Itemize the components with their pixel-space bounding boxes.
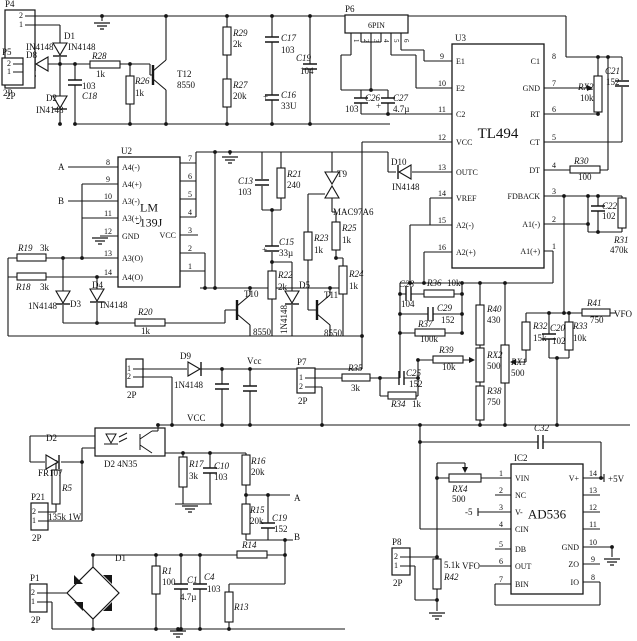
label-C10: C10 (214, 461, 230, 471)
potentiometer-body (594, 76, 602, 112)
junction-dot (334, 256, 338, 260)
label-1k: 1k (135, 88, 145, 98)
label-100: 100 (578, 172, 592, 182)
junction-dot (460, 312, 464, 316)
pin-num: 4 (382, 39, 390, 43)
pin-num: 15 (438, 216, 446, 225)
junction-dot (435, 555, 439, 559)
junction-dot (270, 208, 274, 212)
pin-num: 7 (499, 575, 503, 584)
pin-num: 2 (32, 507, 36, 516)
pin-label: DT (529, 166, 540, 175)
bridge-diode-icon (74, 602, 83, 611)
pin-num: 2 (299, 382, 303, 391)
pin-num: 13 (438, 163, 446, 172)
label-R33: R33 (572, 321, 588, 331)
label-750: 750 (487, 397, 501, 407)
label-103: 103 (214, 472, 228, 482)
label-470k: 470k (610, 245, 629, 255)
pin-label: A3(O) (122, 254, 143, 263)
bridge-rectifier-icon (67, 567, 119, 619)
pin-label: CT (530, 138, 540, 147)
label-102: 102 (552, 336, 566, 346)
label-T10: T10 (244, 289, 259, 299)
pin-num: 10 (438, 79, 446, 88)
label-R39: R39 (438, 345, 454, 355)
junction-dot (596, 194, 600, 198)
junction-dot (198, 627, 202, 631)
junction-dot (283, 553, 287, 557)
label-R42: R42 (443, 572, 459, 582)
junction-dot (586, 222, 590, 226)
junction-dot (398, 312, 402, 316)
ground-icon (94, 23, 110, 29)
pin-label: A4(O) (122, 273, 143, 282)
label-500: 500 (452, 494, 466, 504)
pin-label: VCC (160, 231, 176, 240)
resistor-body (388, 392, 416, 399)
label-3k: 3k (40, 282, 50, 292)
pin-label: A1(-) (522, 220, 540, 229)
junction-dot (164, 14, 168, 18)
junction-dot (270, 260, 274, 264)
junction-dot (503, 281, 507, 285)
potentiometer-body (476, 348, 484, 382)
diode-icon (56, 291, 70, 303)
pin-num: 10 (589, 538, 597, 547)
ground-icon (92, 238, 108, 244)
label-D4: D4 (92, 280, 103, 290)
label-C19: C19 (296, 53, 312, 63)
label-10k: 10k (447, 278, 461, 288)
label-R30: R30 (573, 156, 589, 166)
pin-label: ZO (568, 560, 579, 569)
label-1N4148: 1N4148 (28, 301, 57, 311)
label-VFO: VFO (614, 309, 633, 319)
capacitor-plates (538, 435, 543, 449)
pin-num: 11 (438, 105, 446, 114)
junction-dot (369, 88, 373, 92)
diode-icon (36, 57, 48, 71)
label-R34: R34 (390, 399, 406, 409)
label-8550: 8550 (177, 80, 196, 90)
label-430: 430 (487, 315, 501, 325)
pin-num: 2 (188, 244, 192, 253)
pin-num: 2 (499, 486, 503, 495)
junction-dot (270, 14, 274, 18)
junction-dot (61, 256, 65, 260)
label-1k: 1k (349, 281, 359, 291)
pin-num: 1 (299, 373, 303, 382)
connector-sub: 2P (31, 615, 41, 625)
pin-num: 3 (499, 503, 503, 512)
label-D1: D1 (64, 31, 75, 41)
transistor-legs (237, 295, 250, 325)
connector-ref-P1: P1 (30, 573, 40, 583)
label-20k: 20k (233, 91, 247, 101)
label-1k: 1k (412, 399, 422, 409)
label-R19: R19 (17, 243, 33, 253)
junction-dot (176, 627, 180, 631)
junction-dot (248, 423, 252, 427)
ground-icon (604, 559, 620, 565)
connector-sub: 2P (298, 396, 308, 406)
pin-label: BIN (515, 580, 529, 589)
junction-dot (308, 122, 312, 126)
resistor-body (277, 168, 285, 198)
resistor-body (268, 271, 276, 299)
label-15k: 15k (533, 333, 547, 343)
label-Vcc: Vcc (247, 356, 262, 366)
label-R36: R36 (426, 278, 442, 288)
junction-dot (225, 122, 229, 126)
label-R22: R22 (277, 270, 293, 280)
pin-label: VREF (456, 194, 477, 203)
label-R37: R37 (417, 319, 433, 329)
label-RX1: RX1 (510, 357, 527, 367)
label-D2: D2 (46, 93, 57, 103)
label-B: B (58, 196, 64, 206)
pin-num: 12 (104, 227, 112, 236)
ic-ref-U3: U3 (455, 33, 466, 43)
diode-icon (188, 362, 200, 376)
junction-dot (220, 423, 224, 427)
junction-dot (80, 460, 84, 464)
label-R17: R17 (188, 459, 204, 469)
label-D8: D8 (26, 50, 37, 60)
junction-dot (91, 553, 95, 557)
pin-num: 5 (188, 190, 192, 199)
pin-num: 7 (188, 154, 192, 163)
junction-dot (360, 334, 364, 338)
junction-dot (555, 423, 559, 427)
label-750: 750 (590, 315, 604, 325)
resistor-body (618, 198, 626, 228)
junction-dot (562, 311, 566, 315)
junction-dot (586, 194, 590, 198)
label-+: + (376, 101, 381, 111)
junction-dot (95, 321, 99, 325)
label-103: 103 (238, 187, 252, 197)
resistor-body (522, 322, 530, 350)
label--5: -5 (465, 507, 473, 517)
label-33U: 33U (281, 101, 297, 111)
resistor-body (179, 457, 187, 487)
label-R18: R18 (15, 282, 31, 292)
junction-dot (398, 331, 402, 335)
resistor-body (476, 305, 484, 345)
junction-dot (213, 150, 217, 154)
potentiometer-body (449, 474, 481, 482)
junction-dot (244, 493, 248, 497)
connector-sub: 6PIN (368, 21, 385, 30)
triac-icon (325, 186, 339, 198)
pin-num: 8 (106, 158, 110, 167)
resistor-body (17, 273, 46, 280)
pin-num: 14 (589, 469, 597, 478)
label-R21: R21 (286, 169, 302, 179)
label-R15: R15 (249, 505, 265, 515)
resistor-body (424, 290, 454, 297)
junction-dot (58, 62, 62, 66)
label-1N4148: 1N4148 (279, 305, 289, 334)
ground-icon (222, 157, 238, 163)
label-R24: R24 (348, 269, 364, 279)
wiper-arrow-icon (469, 357, 475, 363)
junction-dot (320, 423, 324, 427)
label-C32: C32 (534, 423, 550, 433)
resistor-body (225, 592, 233, 622)
label-500: 500 (511, 368, 525, 378)
label-VFO: VFO (462, 561, 481, 571)
label-C13: C13 (238, 176, 254, 186)
label-R38: R38 (486, 386, 502, 396)
label-1k: 1k (342, 235, 352, 245)
capacitor-plates (174, 584, 188, 589)
pin-label: C1 (531, 57, 540, 66)
pin-label: RT (530, 110, 540, 119)
junction-dot (418, 423, 422, 427)
junction-dot (596, 55, 600, 59)
pin-num: 2 (362, 39, 370, 43)
label-1k: 1k (314, 245, 324, 255)
label-T12: T12 (177, 69, 192, 79)
pin-num: 10 (104, 192, 112, 201)
junction-dot (398, 292, 402, 296)
pin-num: 7 (552, 79, 556, 88)
pin-num: 4 (552, 161, 556, 170)
label-R26: R26 (134, 76, 150, 86)
label-R31: R31 (613, 235, 629, 245)
label-+: + (263, 92, 268, 102)
junction-dot (596, 112, 600, 116)
ground-icon (170, 631, 186, 637)
junction-dot (220, 367, 224, 371)
label-100: 100 (162, 577, 176, 587)
resistor-body (304, 232, 312, 260)
junction-dot (95, 275, 99, 279)
resistor-body (476, 386, 484, 420)
pin-num: 3 (552, 187, 556, 196)
label-A: A (58, 162, 65, 172)
label-R20: R20 (137, 307, 153, 317)
label-T11: T11 (324, 290, 338, 300)
pin-num: 1 (499, 469, 503, 478)
schematic-canvas: U2LM-139J8A4(-)9A4(+)10A3(-)11A3(+)12GND… (0, 0, 637, 641)
junction-dot (181, 451, 185, 455)
pin-num: 14 (438, 189, 446, 198)
pin-label: V- (515, 508, 523, 517)
label-3k: 3k (189, 471, 199, 481)
label-500: 500 (487, 361, 501, 371)
label-1k: 1k (96, 69, 106, 79)
label-FR107: FR107 (38, 468, 63, 478)
ic-name-U3: TL494 (478, 126, 519, 142)
junction-dot (562, 194, 566, 198)
label-IN4148: IN4148 (100, 300, 128, 310)
label-20k: 20k (251, 467, 265, 477)
label-R23: R23 (313, 233, 329, 243)
junction-dot (100, 14, 104, 18)
pin-num: 13 (104, 249, 112, 258)
resistor-body (342, 374, 370, 381)
bridge-diode-icon (103, 602, 112, 611)
junction-dot (435, 598, 439, 602)
pin-num: 5 (552, 133, 556, 142)
label-103: 103 (207, 584, 221, 594)
pin-num: 1 (394, 561, 398, 570)
pin-num: 13 (589, 486, 597, 495)
label-C20: C20 (550, 323, 566, 333)
junction-dot (179, 553, 183, 557)
pin-num: 8 (591, 573, 595, 582)
pin-num: 2 (31, 588, 35, 597)
diode-icon (399, 165, 411, 179)
label-152: 152 (441, 315, 455, 325)
junction-dot (422, 281, 426, 285)
junction-dot (460, 281, 464, 285)
junction-dot (308, 14, 312, 18)
label-10k: 10k (442, 362, 456, 372)
junction-dot (128, 62, 132, 66)
ic-name-U2: LM (140, 201, 158, 215)
label-152: 152 (606, 77, 620, 87)
resistor-body (242, 504, 250, 534)
pin-label: C2 (456, 110, 465, 119)
pin-num: 9 (106, 175, 110, 184)
label-R28: R28 (91, 51, 107, 61)
label-103: 103 (82, 81, 96, 91)
label-2k: 2k (233, 39, 243, 49)
junction-dot (154, 553, 158, 557)
label-R27: R27 (232, 80, 248, 90)
schematic-page: TL494 / LM-139J / AD536 power control sc… (0, 0, 637, 641)
pin-num: 1 (7, 67, 11, 76)
label-4.7µ: 4.7µ (180, 592, 196, 602)
junction-dot (164, 122, 168, 126)
pin-num: 9 (591, 555, 595, 564)
transistor-legs (153, 60, 166, 90)
connector-ref-P21: P21 (31, 492, 45, 502)
label-135k 1W: 135k 1W (48, 512, 82, 522)
resistor-body (223, 27, 231, 55)
connector-ref-P7: P7 (297, 357, 307, 367)
label-R32: R32 (532, 321, 548, 331)
resistor-body (339, 266, 347, 294)
pin-label: DB (515, 545, 526, 554)
pin-num: 1 (188, 262, 192, 271)
ic-name-IC2: AD536 (528, 507, 567, 522)
pin-num: 9 (440, 52, 444, 61)
junction-dot (208, 451, 212, 455)
pin-num: 4 (188, 208, 192, 217)
label-MAC97A6: MAC97A6 (333, 207, 374, 217)
label-C16: C16 (281, 90, 297, 100)
label-C27: C27 (393, 93, 409, 103)
junction-dot (73, 122, 77, 126)
label-+: + (262, 245, 267, 255)
label-D1: D1 (115, 553, 126, 563)
junction-dot (248, 367, 252, 371)
label-4.7µ: 4.7µ (393, 104, 409, 114)
capacitor-plates (265, 246, 279, 251)
resistor-body (242, 455, 250, 485)
junction-dot (386, 112, 390, 116)
label-C17: C17 (281, 33, 297, 43)
junction-dot (58, 122, 62, 126)
resistor-body (135, 319, 165, 326)
pin-label: V+ (569, 474, 580, 483)
pin-num: 14 (104, 268, 112, 277)
junction-dot (378, 376, 382, 380)
junction-dot (435, 476, 439, 480)
label-104: 104 (300, 66, 314, 76)
resistor-body (237, 551, 267, 558)
pin-label: E1 (456, 57, 465, 66)
pin-label: A3(+) (122, 214, 142, 223)
label-10k: 10k (573, 333, 587, 343)
pin-num: 1 (352, 39, 360, 43)
pin-label: A4(-) (122, 163, 140, 172)
junction-dot (418, 440, 422, 444)
pin-num: 12 (589, 503, 597, 512)
pin-label: A3(-) (122, 197, 140, 206)
junction-dot (416, 358, 420, 362)
junction-dot (266, 493, 270, 497)
pin-num: 1 (32, 516, 36, 525)
label-152: 152 (274, 524, 288, 534)
pin-num: 6 (552, 105, 556, 114)
junction-dot (478, 281, 482, 285)
diode-icon (53, 43, 67, 55)
connector-sub: 2P (393, 578, 403, 588)
pin-num: 1 (31, 597, 35, 606)
label-C19: C19 (272, 513, 288, 523)
pin-num: 5 (499, 540, 503, 549)
label-152: 152 (409, 379, 423, 389)
label-R1: R1 (161, 566, 172, 576)
junction-dot (91, 627, 95, 631)
label-R13: R13 (233, 602, 249, 612)
connector-ref-P6: P6 (345, 4, 355, 14)
junction-dot (460, 292, 464, 296)
pin-label: GND (122, 232, 140, 241)
bridge-diode-icon (103, 575, 112, 584)
ground-icon (182, 506, 198, 512)
pin-num: 8 (552, 52, 556, 61)
resistor-body (332, 222, 340, 250)
pin-num: 2 (552, 215, 556, 224)
label-R5: R5 (61, 483, 72, 493)
wiper-arrow-icon (462, 467, 468, 473)
junction-dot (228, 150, 232, 154)
label-B: B (294, 532, 300, 542)
pin-num: 2 (19, 11, 23, 20)
pin-label: GND (523, 84, 541, 93)
capacitor-plates (243, 386, 257, 391)
label-1N4148: 1N4148 (174, 380, 203, 390)
capacitor-plates (215, 384, 229, 389)
ic-ref-U2: U2 (121, 146, 132, 156)
label-VCC: VCC (187, 413, 206, 423)
label-C29: C29 (437, 303, 453, 313)
label-2k: 2k (278, 282, 288, 292)
label-C21: C21 (605, 66, 620, 76)
pin-label: VIN (515, 474, 529, 483)
connector-sub: 2P (127, 390, 137, 400)
junction-dot (198, 553, 202, 557)
label-RX2: RX2 (577, 82, 594, 92)
